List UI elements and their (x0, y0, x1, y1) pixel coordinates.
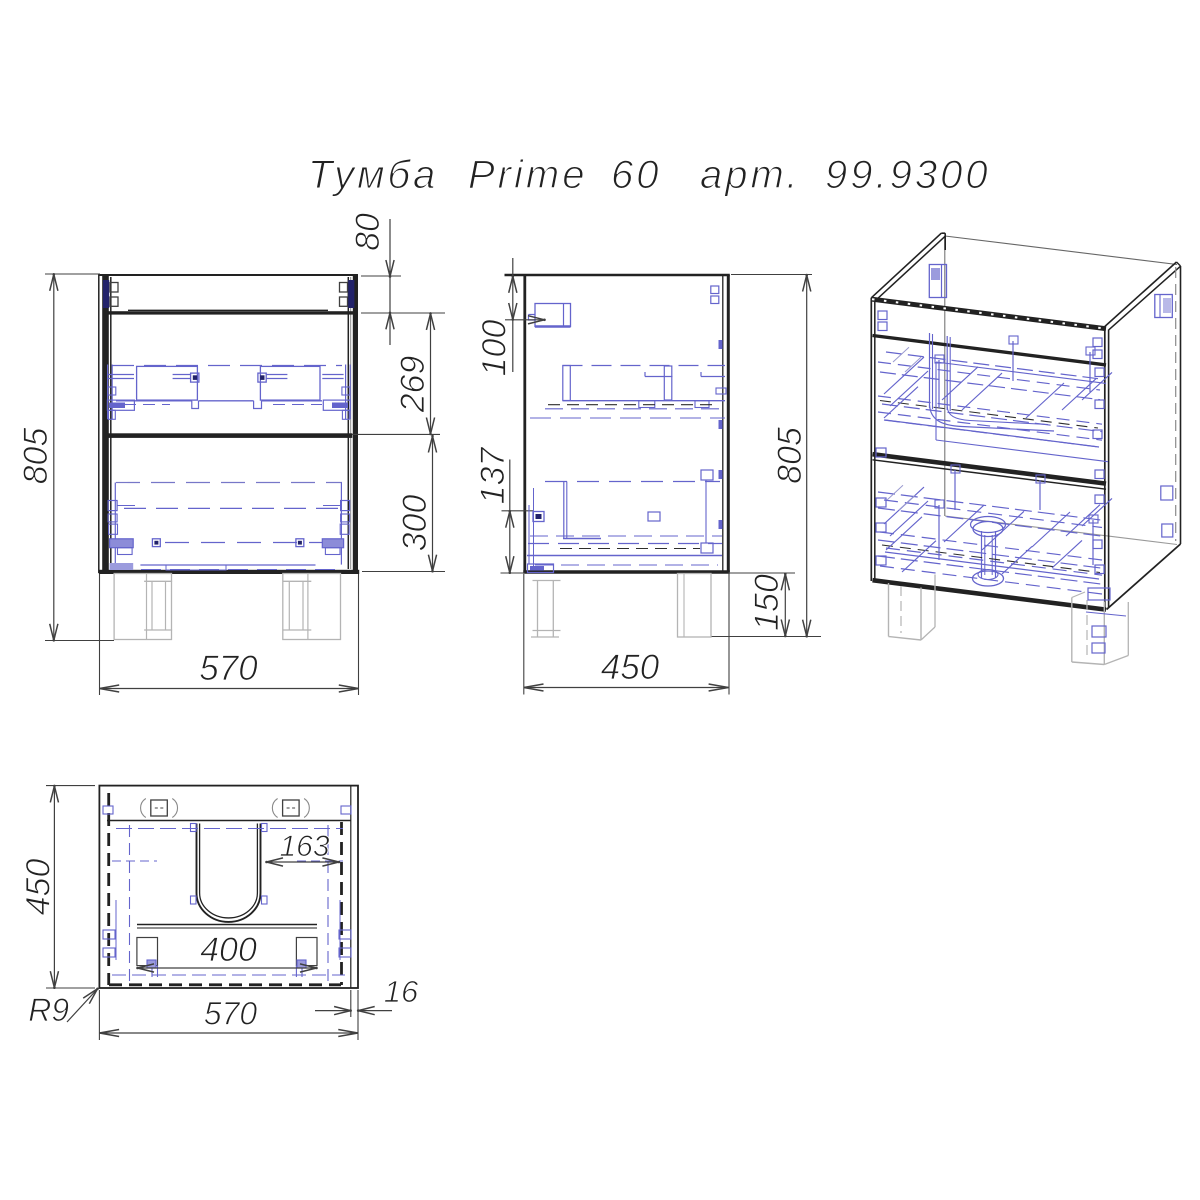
svg-text:арт.: арт. (700, 153, 800, 197)
svg-text:400: 400 (200, 931, 257, 969)
svg-text:80: 80 (349, 213, 387, 251)
svg-text:450: 450 (601, 648, 660, 687)
svg-text:16: 16 (384, 974, 419, 1009)
svg-text:60: 60 (611, 153, 662, 197)
svg-text:R9: R9 (28, 992, 69, 1028)
svg-text:300: 300 (396, 495, 434, 552)
svg-text:137: 137 (474, 447, 512, 505)
svg-text:150: 150 (748, 574, 786, 631)
svg-text:99.9300: 99.9300 (825, 153, 991, 197)
svg-text:269: 269 (394, 356, 432, 414)
svg-text:805: 805 (17, 428, 55, 485)
svg-text:450: 450 (20, 859, 58, 916)
svg-text:805: 805 (771, 427, 809, 484)
svg-text:163: 163 (279, 830, 329, 863)
svg-text:100: 100 (476, 320, 514, 377)
svg-text:570: 570 (204, 996, 258, 1032)
svg-text:Тумба: Тумба (308, 153, 438, 197)
svg-text:570: 570 (199, 649, 258, 688)
svg-text:Prime: Prime (468, 153, 587, 197)
